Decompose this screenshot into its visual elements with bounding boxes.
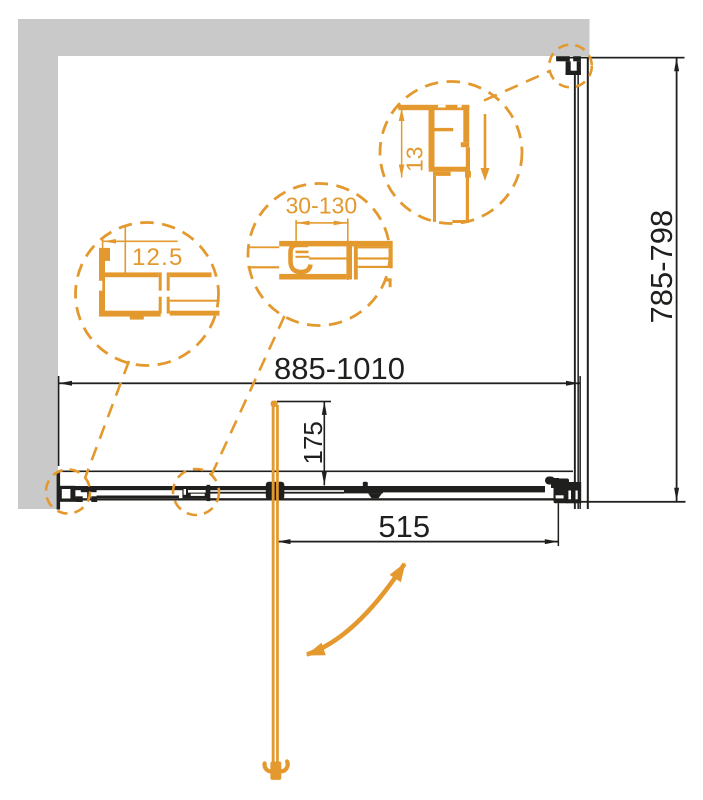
svg-text:885-1010: 885-1010 [274,351,405,386]
svg-text:515: 515 [378,509,430,544]
svg-text:175: 175 [298,421,328,464]
svg-text:30-130: 30-130 [286,193,358,219]
svg-text:13: 13 [402,146,428,172]
svg-text:785-798: 785-798 [644,210,679,324]
svg-text:12.5: 12.5 [132,244,184,271]
